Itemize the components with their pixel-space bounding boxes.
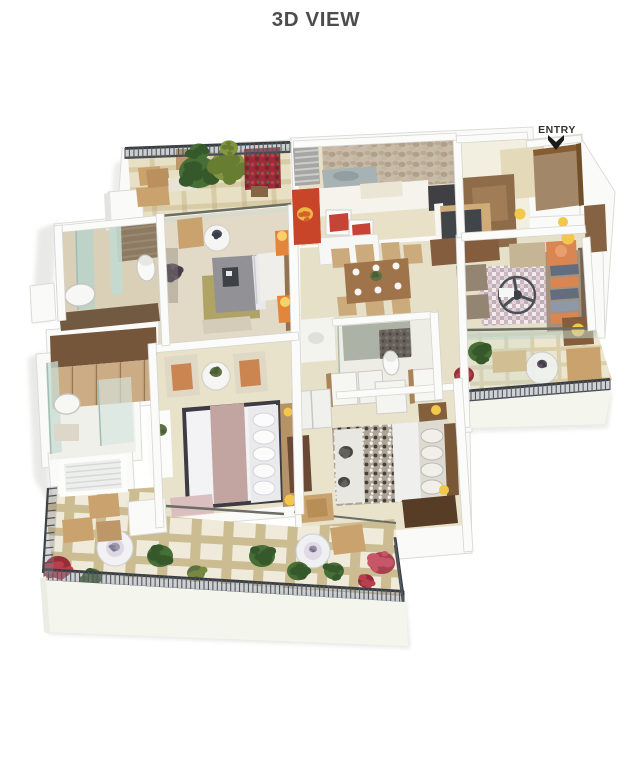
svg-text:3D VIEW: 3D VIEW (272, 8, 361, 31)
svg-text:ENTRY: ENTRY (538, 124, 576, 136)
